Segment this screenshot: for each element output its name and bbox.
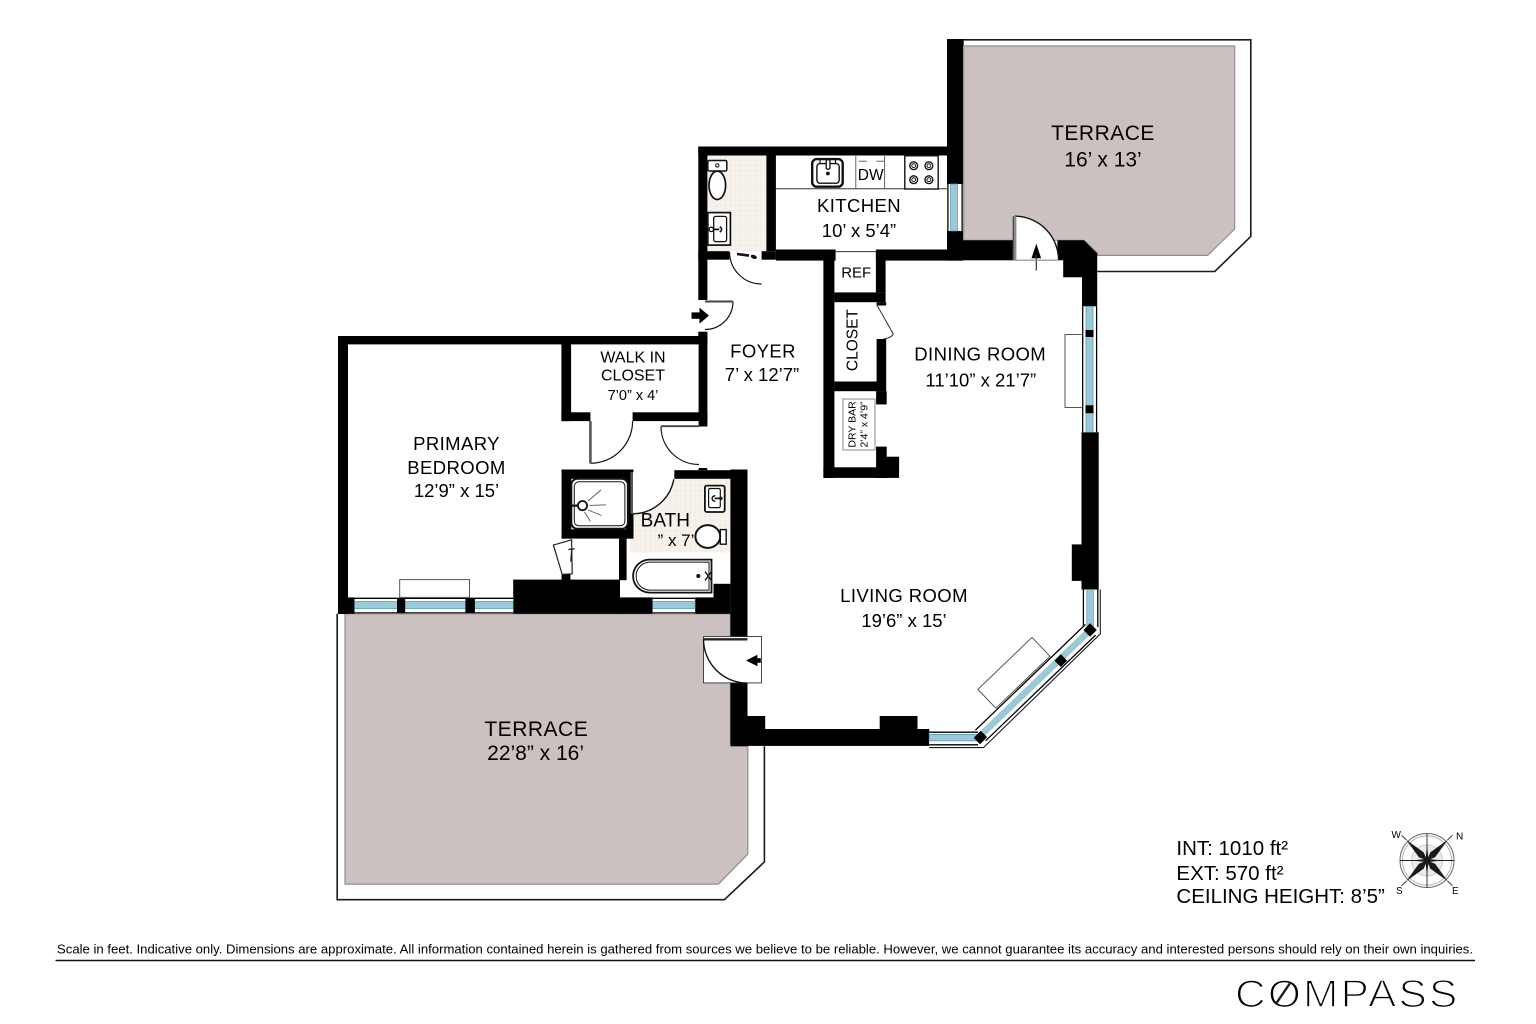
svg-text:” x 7’: ” x 7’ (658, 531, 695, 550)
svg-text:TERRACE: TERRACE (484, 718, 588, 741)
svg-text:BATH: BATH (641, 510, 690, 531)
svg-text:7’ x 12’7”: 7’ x 12’7” (725, 364, 799, 385)
svg-text:E: E (1452, 886, 1459, 897)
svg-text:DW: DW (858, 167, 884, 184)
svg-text:WALK IN: WALK IN (600, 350, 665, 367)
svg-text:PRIMARY: PRIMARY (413, 433, 500, 454)
svg-text:19’6” x 15’: 19’6” x 15’ (861, 610, 946, 631)
svg-text:S: S (1396, 886, 1403, 897)
svg-text:TERRACE: TERRACE (1051, 122, 1155, 145)
svg-text:CEILING HEIGHT: 8’5”: CEILING HEIGHT: 8’5” (1176, 885, 1385, 908)
svg-text:CLOSET: CLOSET (845, 309, 862, 372)
svg-text:16’ x 13’: 16’ x 13’ (1064, 149, 1141, 172)
svg-text:COMPASS: COMPASS (1235, 973, 1460, 1016)
svg-text:10’ x 5’4”: 10’ x 5’4” (822, 220, 896, 241)
svg-text:BEDROOM: BEDROOM (407, 457, 505, 478)
svg-text:FOYER: FOYER (730, 341, 796, 362)
svg-text:KITCHEN: KITCHEN (817, 195, 901, 216)
svg-text:INT: 1010 ft²: INT: 1010 ft² (1176, 837, 1288, 860)
svg-text:CLOSET: CLOSET (601, 368, 665, 385)
svg-text:DRY BAR: DRY BAR (847, 401, 859, 448)
svg-text:N: N (1456, 832, 1463, 843)
svg-text:11’10” x 21’7”: 11’10” x 21’7” (925, 370, 1036, 391)
svg-text:REF: REF (841, 265, 871, 282)
svg-text:DINING ROOM: DINING ROOM (914, 344, 1046, 365)
svg-text:Scale in feet. Indicative only: Scale in feet. Indicative only. Dimensio… (57, 942, 1473, 957)
svg-text:2’4” x 4’9”: 2’4” x 4’9” (859, 401, 871, 448)
svg-text:7’0” x 4’: 7’0” x 4’ (608, 388, 659, 404)
svg-text:W: W (1392, 830, 1402, 841)
svg-text:12’9” x 15’: 12’9” x 15’ (414, 480, 499, 501)
svg-text:EXT: 570 ft²: EXT: 570 ft² (1176, 862, 1283, 885)
svg-text:22’8” x 16’: 22’8” x 16’ (487, 742, 584, 765)
svg-text:LIVING ROOM: LIVING ROOM (840, 585, 968, 606)
